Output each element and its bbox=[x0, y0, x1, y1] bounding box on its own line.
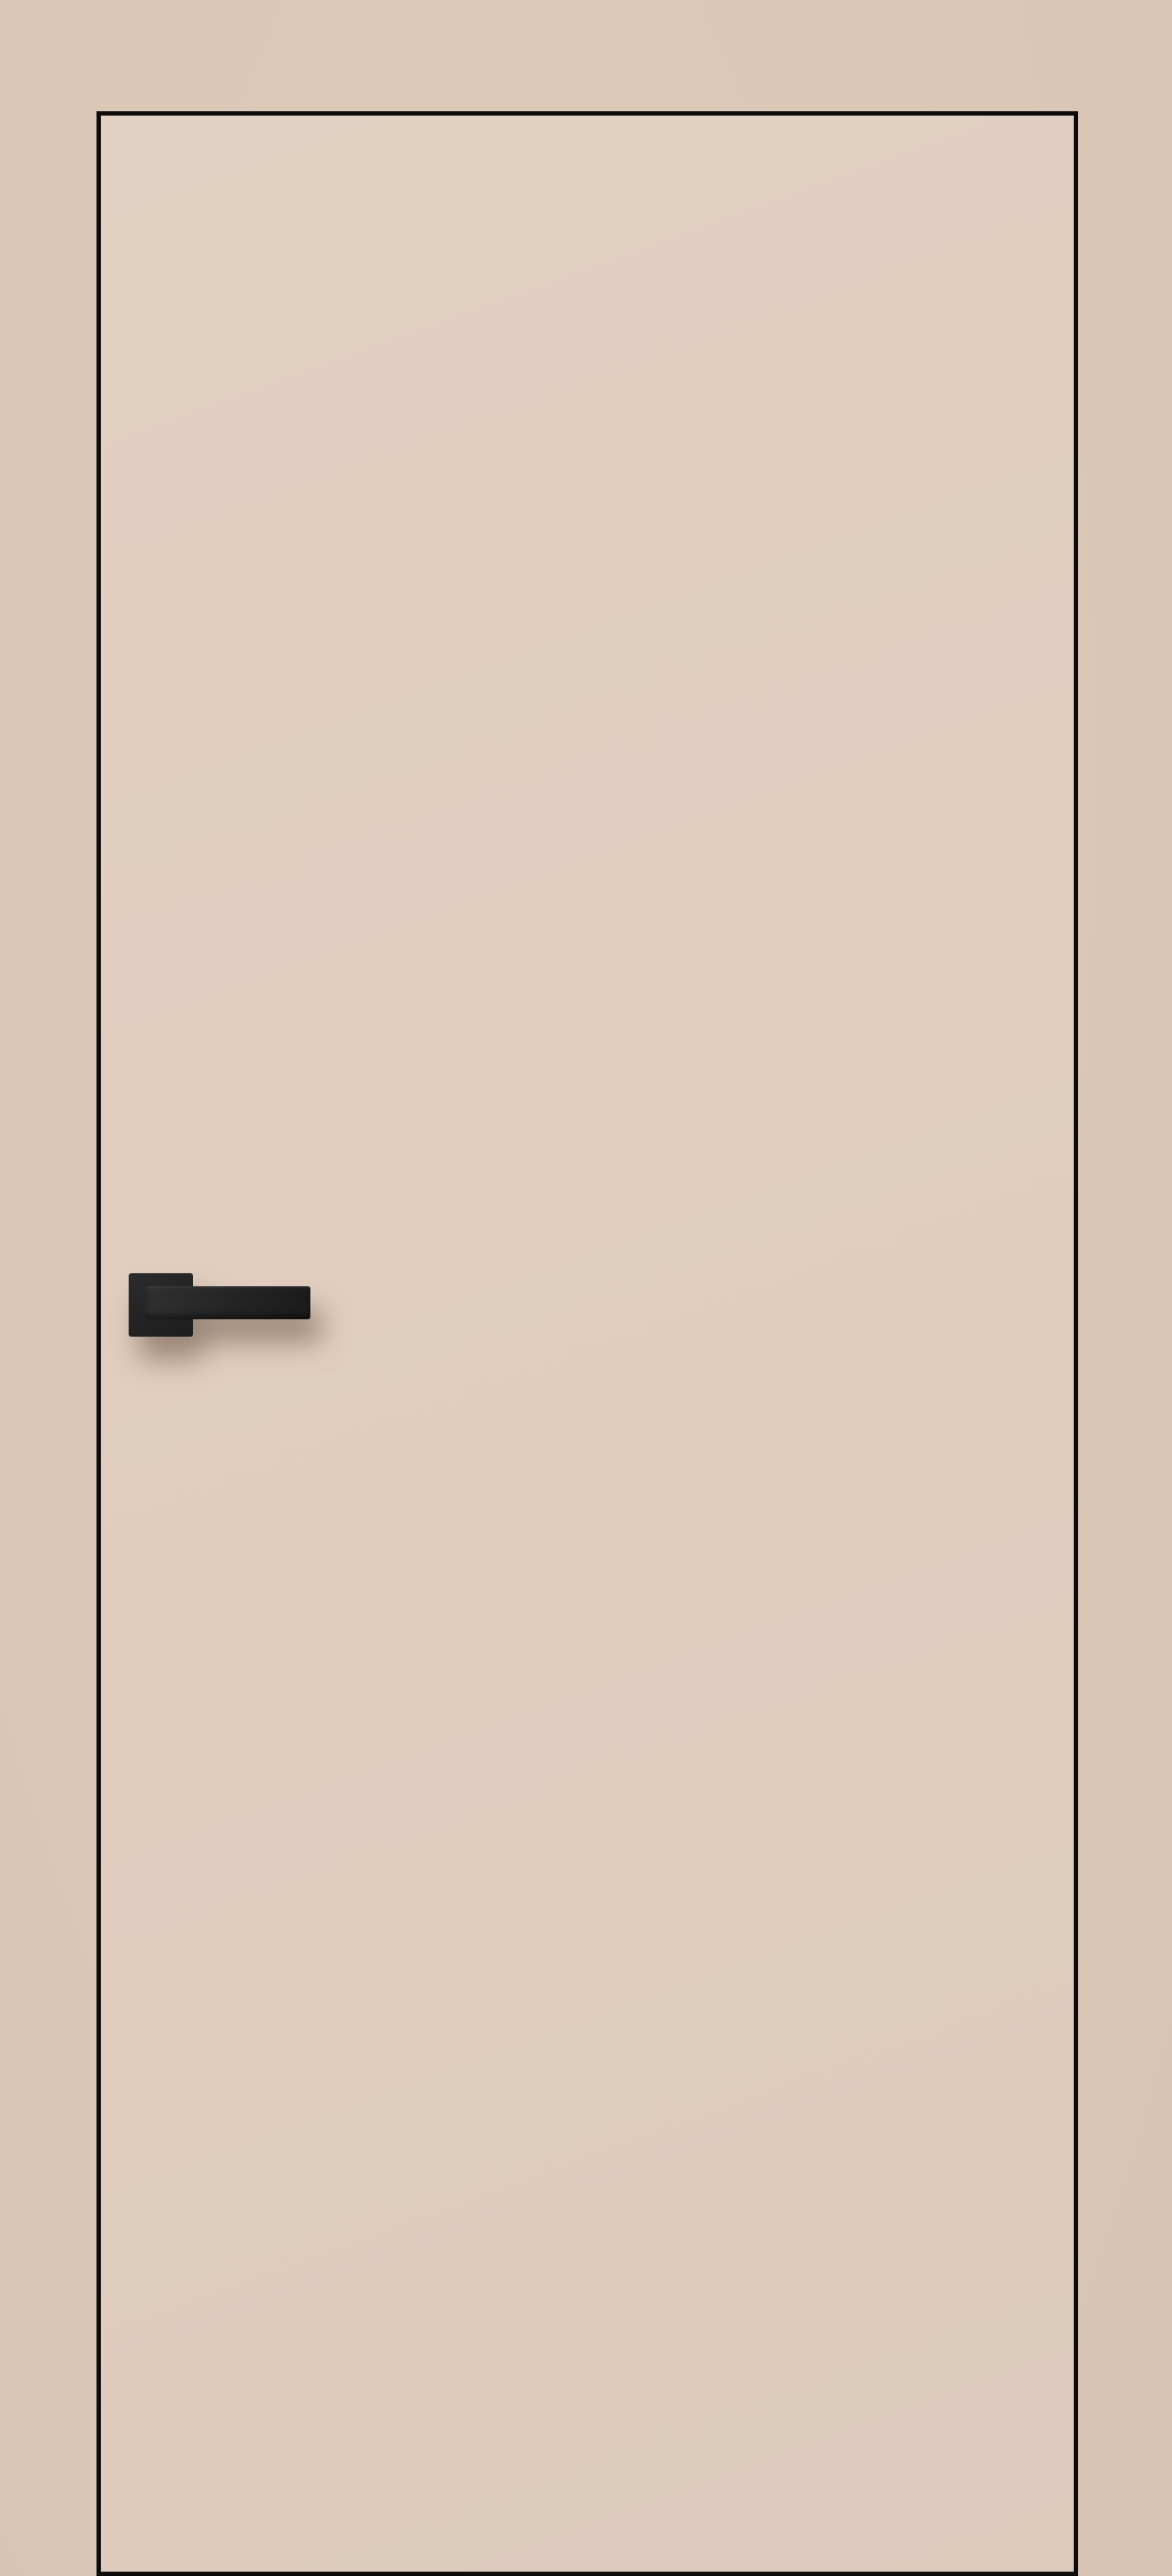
door-panel bbox=[97, 111, 1078, 2576]
door-product-photo bbox=[0, 0, 1172, 2576]
